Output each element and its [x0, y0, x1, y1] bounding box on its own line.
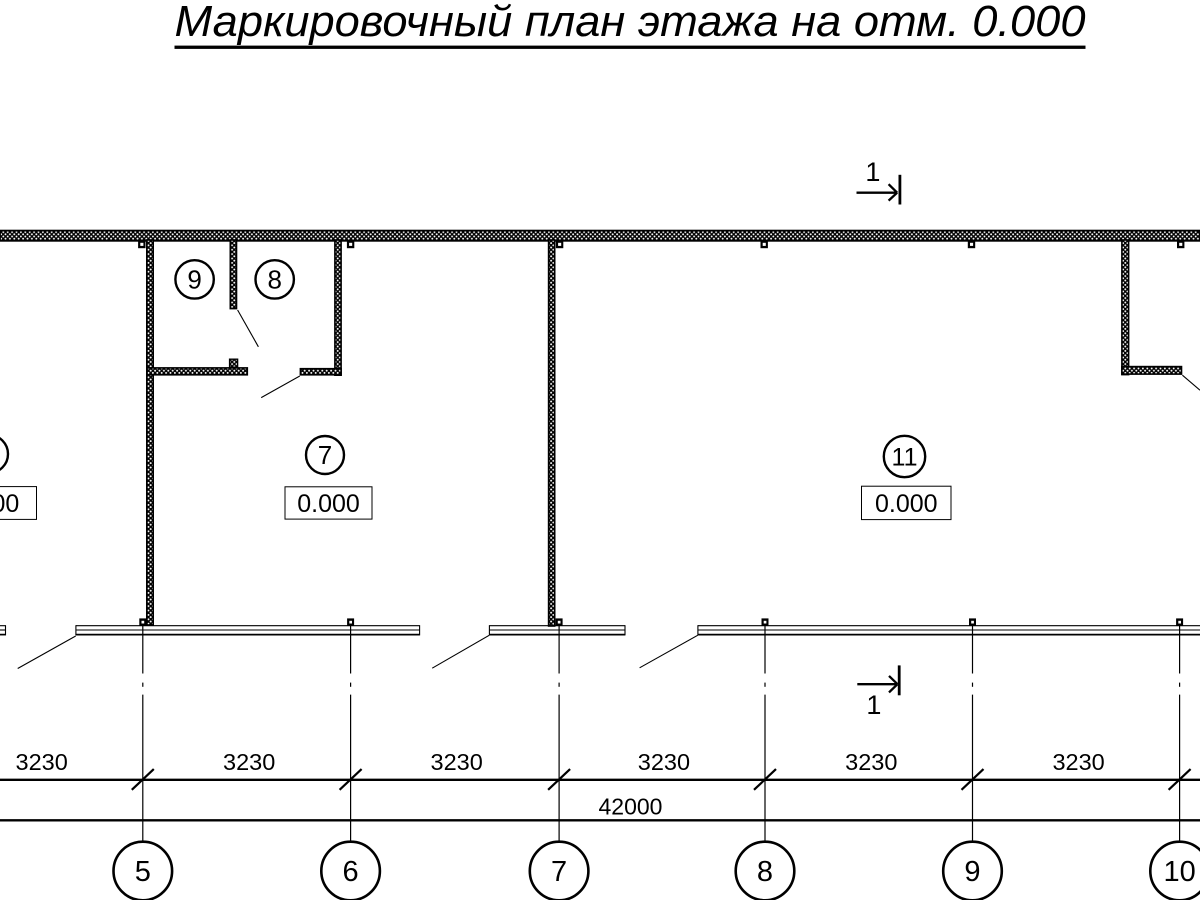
- svg-text:5: 5: [135, 856, 151, 888]
- svg-text:8: 8: [267, 265, 281, 295]
- svg-text:10: 10: [1163, 856, 1195, 888]
- svg-text:9: 9: [187, 265, 201, 295]
- svg-text:3230: 3230: [223, 749, 275, 775]
- svg-text:11: 11: [892, 444, 918, 472]
- svg-text:7: 7: [318, 440, 332, 470]
- svg-text:0.000: 0.000: [0, 490, 19, 518]
- svg-text:42000: 42000: [599, 793, 663, 819]
- svg-text:9: 9: [964, 856, 980, 888]
- svg-text:3230: 3230: [431, 749, 483, 775]
- svg-text:7: 7: [551, 856, 567, 888]
- svg-text:1: 1: [866, 690, 881, 720]
- svg-text:8: 8: [757, 856, 773, 888]
- svg-text:0.000: 0.000: [297, 490, 360, 518]
- svg-text:6: 6: [343, 856, 359, 888]
- svg-text:3230: 3230: [845, 749, 897, 775]
- svg-text:3230: 3230: [16, 749, 68, 775]
- svg-text:3230: 3230: [638, 749, 690, 775]
- svg-text:Маркировочный план этажа на от: Маркировочный план этажа на отм. 0.000: [175, 0, 1087, 46]
- svg-text:1: 1: [865, 157, 880, 187]
- svg-text:3230: 3230: [1052, 749, 1104, 775]
- svg-text:0.000: 0.000: [875, 490, 938, 518]
